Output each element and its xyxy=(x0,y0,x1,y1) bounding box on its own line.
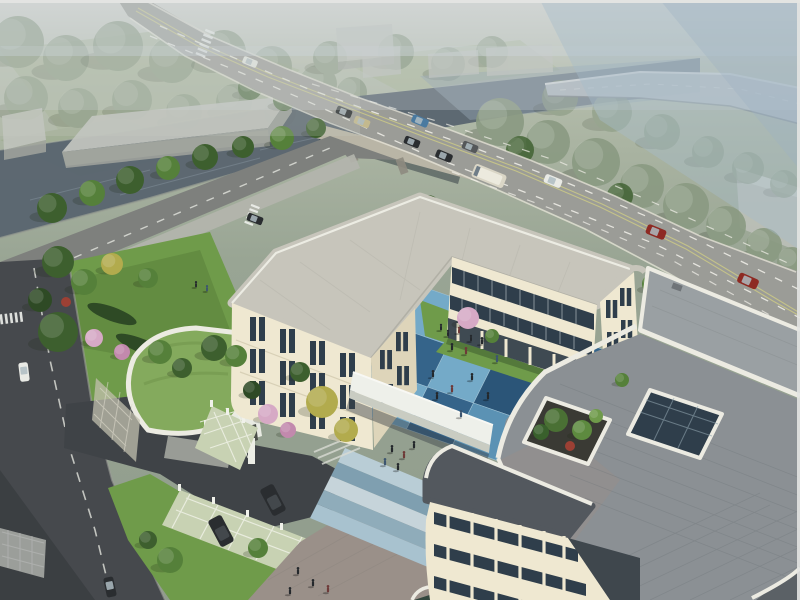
rendering-canvas xyxy=(0,0,800,600)
frame-top xyxy=(0,0,800,3)
rendering-root xyxy=(0,0,800,600)
